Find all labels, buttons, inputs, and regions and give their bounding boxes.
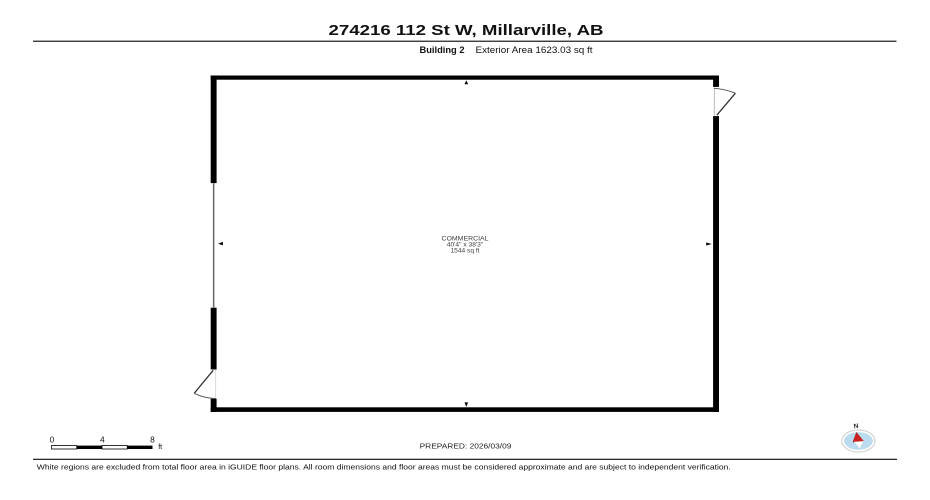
svg-text:ft: ft xyxy=(158,442,162,451)
svg-text:8: 8 xyxy=(150,434,155,444)
svg-text:PREPARED: 2026/03/09: PREPARED: 2026/03/09 xyxy=(420,441,512,450)
svg-text:Building 2: Building 2 xyxy=(420,45,465,55)
svg-text:0: 0 xyxy=(50,434,55,444)
svg-text:274216 112 St W, Millarville,: 274216 112 St W, Millarville, AB xyxy=(329,23,604,39)
svg-text:White regions are excluded fro: White regions are excluded from total fl… xyxy=(37,465,731,472)
svg-text:1544 sq ft: 1544 sq ft xyxy=(451,247,480,254)
svg-text:4: 4 xyxy=(100,434,105,444)
svg-text:Exterior Area 1623.03 sq ft: Exterior Area 1623.03 sq ft xyxy=(476,45,593,55)
